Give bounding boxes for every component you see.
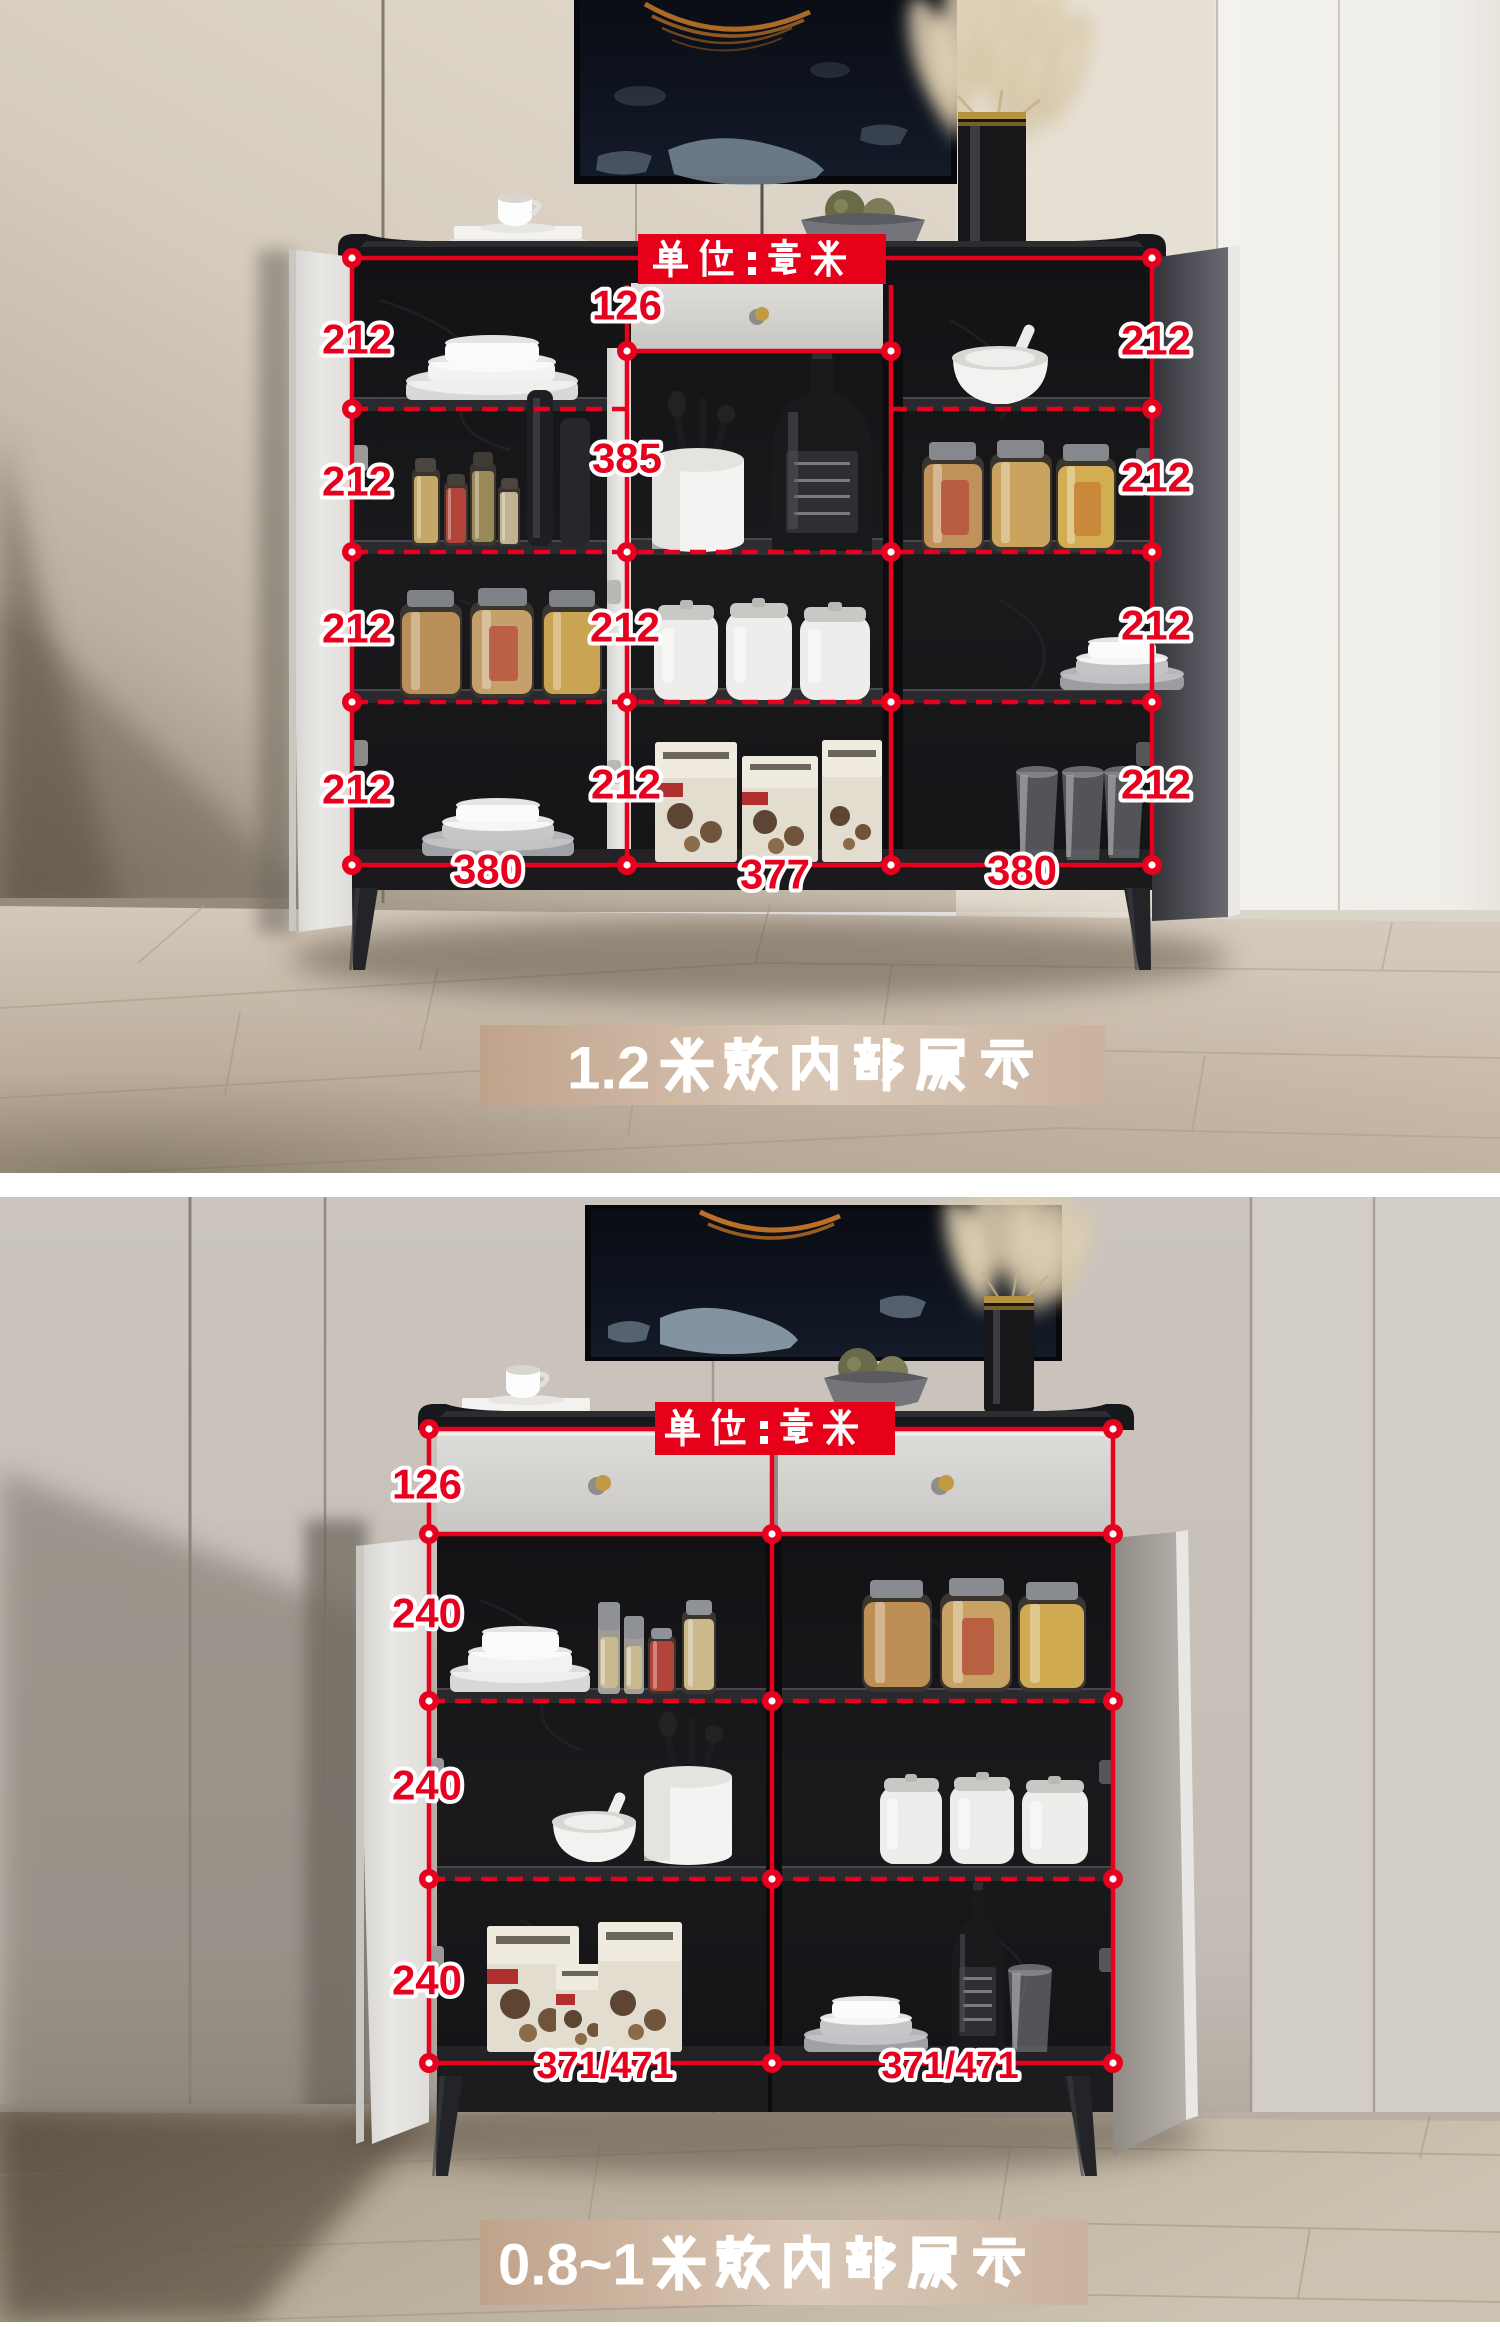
- svg-text:126: 126: [592, 282, 662, 329]
- svg-text:1.2: 1.2: [567, 1035, 650, 1102]
- svg-text:377: 377: [740, 851, 810, 898]
- svg-text:212: 212: [1121, 602, 1191, 649]
- svg-text:0.8~1: 0.8~1: [498, 2233, 645, 2298]
- svg-text:212: 212: [322, 316, 392, 363]
- svg-text:212: 212: [591, 761, 661, 808]
- svg-text:240: 240: [392, 1957, 462, 2004]
- svg-text:212: 212: [1121, 454, 1191, 501]
- svg-text:371/471: 371/471: [881, 2045, 1018, 2087]
- svg-text:240: 240: [392, 1762, 462, 1809]
- svg-text:385: 385: [592, 435, 662, 482]
- svg-text:212: 212: [1121, 761, 1191, 808]
- svg-text:212: 212: [322, 458, 392, 505]
- svg-text:371/471: 371/471: [536, 2045, 673, 2087]
- svg-text:380: 380: [987, 847, 1057, 894]
- svg-text:212: 212: [322, 766, 392, 813]
- svg-text:240: 240: [392, 1590, 462, 1637]
- svg-text:212: 212: [1121, 317, 1191, 364]
- svg-text:212: 212: [322, 605, 392, 652]
- svg-text:380: 380: [453, 846, 523, 893]
- svg-text:212: 212: [590, 604, 660, 651]
- svg-text:126: 126: [392, 1461, 462, 1508]
